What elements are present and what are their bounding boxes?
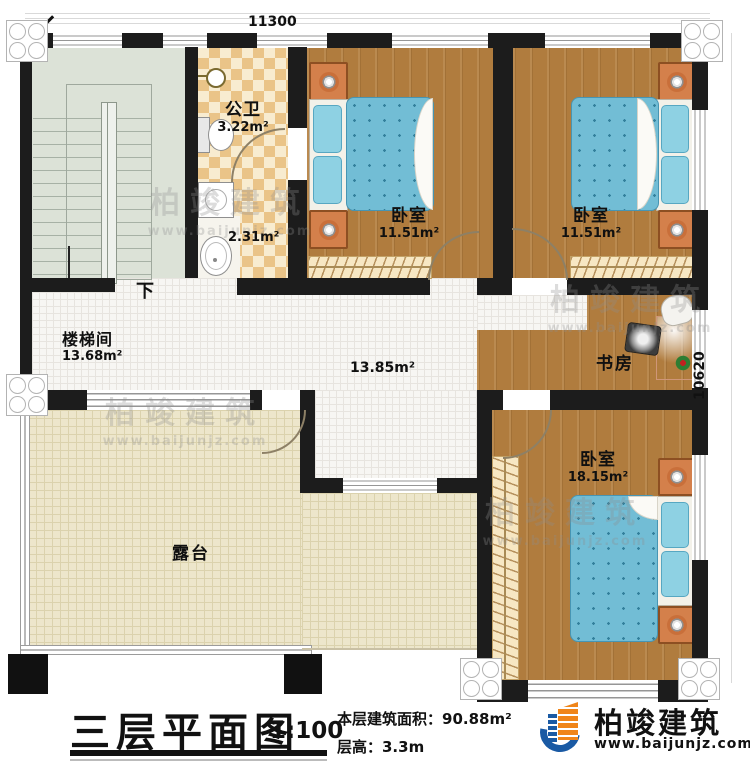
company-website: www.baijunjz.com: [594, 736, 750, 752]
room-area: 18.15m²: [556, 470, 640, 486]
window: [692, 455, 708, 560]
lamp-icon: [667, 615, 687, 635]
floor-plan-page: 柏竣建筑 www.baijunjz.com 柏竣建筑 www.baijunjz.…: [0, 0, 750, 766]
stairs-direction-label: 下: [136, 281, 154, 303]
computer-monitor-icon: [624, 322, 662, 356]
wall: [237, 278, 430, 295]
room-area: 11.51m²: [370, 226, 448, 242]
wall: [122, 33, 163, 48]
wall: [477, 390, 492, 680]
window: [53, 33, 122, 48]
wall: [327, 33, 392, 48]
lamp-icon: [319, 220, 339, 240]
wall: [493, 47, 513, 278]
room-name: 卧室: [552, 206, 630, 226]
pillow: [661, 551, 689, 597]
room-area: 3.22m²: [198, 120, 288, 136]
pillow: [313, 156, 342, 204]
wall: [300, 390, 315, 410]
stair-railing: [101, 102, 117, 284]
room-name: 楼梯间: [62, 330, 122, 349]
terrace-parapet: [20, 410, 30, 652]
pillow: [661, 105, 689, 153]
drawing-scale: 1:100: [270, 718, 343, 744]
nightstand: [658, 210, 696, 249]
window: [257, 33, 327, 48]
terrace-parapet: [20, 645, 312, 655]
bathroom-label: 公卫 3.22m²: [198, 100, 288, 136]
wall: [300, 478, 343, 493]
wall: [477, 278, 512, 295]
nightstand: [658, 606, 696, 644]
bedroom1-label: 卧室 11.51m²: [370, 206, 448, 242]
wall: [550, 390, 692, 410]
room-area: 13.85m²: [350, 360, 415, 377]
wall: [288, 47, 307, 128]
window: [545, 33, 650, 48]
floor-height-text: 层高：3.3m: [337, 736, 424, 757]
nightstand: [309, 210, 348, 249]
terrace-floor-right: [302, 493, 477, 650]
room-area: 2.31m²: [228, 230, 279, 246]
lamp-icon: [667, 72, 687, 92]
wardrobe: [308, 256, 432, 279]
wall: [207, 33, 257, 48]
washing-machine-drum-icon: [205, 189, 227, 211]
stair-direction-arrow: [68, 246, 70, 282]
window: [392, 33, 488, 48]
window: [528, 680, 658, 702]
lamp-icon: [667, 467, 687, 487]
bedroom3-label: 卧室 18.15m²: [556, 450, 640, 486]
room-name: 公卫: [198, 100, 288, 120]
wall: [288, 180, 307, 278]
top-ruler-line: [25, 23, 710, 24]
top-ruler-line: [25, 13, 710, 14]
nightstand: [658, 62, 696, 101]
hall-floor-lower: [315, 390, 477, 480]
column-symbol: [460, 658, 502, 700]
window: [692, 110, 708, 210]
sink-drain-icon: [213, 258, 217, 262]
room-name: 卧室: [556, 450, 640, 470]
room-area: 11.51m²: [552, 226, 630, 242]
column-symbol: [6, 20, 48, 62]
column: [8, 654, 48, 694]
company-logo-icon: [540, 700, 590, 758]
column-symbol: [678, 658, 720, 700]
pillow: [661, 502, 689, 548]
terrace-edge-line: [302, 648, 477, 650]
stairwell-label: 楼梯间 13.68m²: [62, 330, 122, 365]
top-ruler-line: [25, 18, 710, 19]
wall: [477, 390, 503, 410]
column-symbol: [6, 374, 48, 416]
title-underline-thin: [70, 759, 327, 761]
title-underline: [70, 750, 327, 756]
lamp-icon: [667, 220, 687, 240]
wall: [31, 278, 115, 292]
wall: [692, 210, 708, 310]
window: [343, 478, 437, 493]
hall-label: 13.85m²: [350, 360, 415, 377]
bedroom2-label: 卧室 11.51m²: [552, 206, 630, 242]
dimension-label-top: 11300: [248, 14, 297, 30]
wall: [437, 478, 477, 493]
nightstand: [658, 458, 696, 496]
column-symbol: [681, 20, 723, 62]
nightstand: [309, 62, 348, 101]
railing: [87, 390, 250, 410]
wall: [250, 390, 262, 410]
wall: [185, 47, 198, 278]
dimension-label-right: 10620: [692, 330, 708, 400]
right-ruler-line: [731, 33, 732, 683]
lamp-icon: [319, 72, 339, 92]
washroom-label: 2.31m²: [228, 230, 279, 246]
plant-icon: [674, 354, 692, 372]
wall: [488, 33, 545, 48]
room-area: 13.68m²: [62, 349, 122, 365]
terrace-floor: [28, 410, 302, 650]
wardrobe: [492, 456, 519, 680]
room-name: 卧室: [370, 206, 448, 226]
floor-area-text: 本层建筑面积：90.88m²: [337, 708, 512, 729]
pillow: [313, 105, 342, 153]
hall-floor-corridor: [477, 295, 587, 330]
logo-building-icon: [558, 702, 578, 740]
wall: [567, 278, 692, 295]
pillow: [661, 156, 689, 204]
study-label: 书房: [596, 354, 634, 374]
column: [284, 654, 322, 694]
terrace-label: 露台: [172, 544, 210, 564]
logo-building-icon: [548, 714, 557, 742]
shower-head-icon: [206, 68, 226, 88]
wall: [20, 48, 32, 390]
window: [163, 33, 207, 48]
wardrobe: [570, 256, 694, 279]
sink-basin-icon: [205, 242, 227, 270]
